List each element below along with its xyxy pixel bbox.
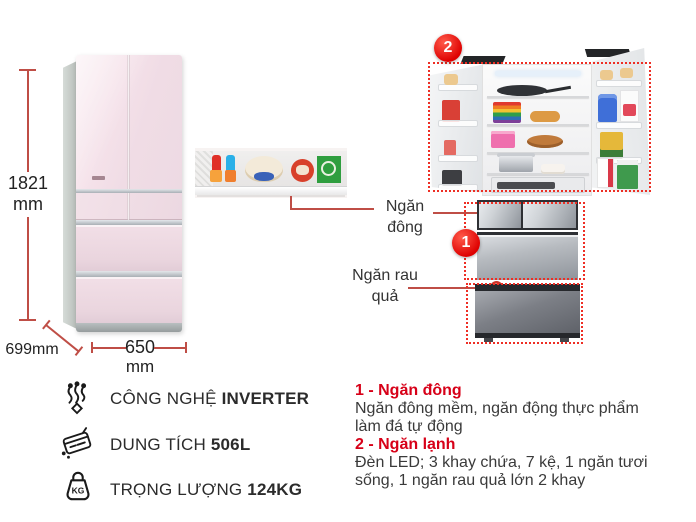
weight-icon-text: KG [72,486,85,496]
fridge-doors [76,55,182,189]
veg-label-line1: Ngăn rau [348,265,422,286]
fridge-drawer-upper [76,225,182,271]
fridge-closed-front [76,55,182,332]
vegetable-compartment-label: Ngăn rau quả [348,265,422,307]
freezer-compartment-label: Ngăn đông [376,196,434,238]
width-dim-line-right [154,347,186,349]
feature-capacity-label: DUNG TÍCH [110,435,206,454]
desc-1-body: Ngăn đông mềm, ngăn động thực phẩm làm đ… [355,400,660,436]
badge-2: 2 [434,34,462,62]
capacity-icon [58,425,96,461]
section-1-outline [464,202,585,280]
feature-weight-value: 124KG [247,480,302,499]
sauce-bottle-blue-base [225,170,236,182]
depth-dimension-label: 699mm [2,341,62,359]
height-dim-line-top [27,70,29,172]
sauce-bottle-red-base [210,170,222,182]
badge-1: 1 [452,229,480,257]
feature-inverter-label: CÔNG NGHỆ [110,389,217,408]
height-value: 1821 [0,173,56,194]
freezer-label-line2: đông [376,217,434,238]
small-drawer-divider [127,193,130,220]
feature-inverter-value: INVERTER [222,389,310,408]
feature-weight: TRỌNG LƯỢNG 124KG [110,480,302,500]
fridge-small-drawers [76,193,182,220]
desc-1-title: 1 - Ngăn đông [355,382,660,400]
height-dim-tick-bottom [19,319,36,321]
veg-label-line2: quả [348,286,422,307]
door-divider [127,55,130,189]
product-infographic: 1821 mm 699mm 650 mm [0,0,696,522]
weight-icon: KG [61,468,95,504]
feature-inverter: CÔNG NGHỆ INVERTER [110,389,309,409]
height-dim-tick-top [19,69,36,71]
tray-front-lip [195,186,347,195]
feature-capacity-value: 506L [211,435,251,454]
freezer-tray-photo [195,148,347,198]
section-2-outline [428,62,651,192]
depth-tick-end [75,346,83,356]
brand-logo-mark [92,176,105,180]
food-box-green-swirl [321,161,336,176]
height-unit: mm [0,194,56,215]
freezer-label-line1: Ngăn [376,196,434,217]
width-dim-tick-right [185,342,187,353]
feature-weight-label: TRỌNG LƯỢNG [110,480,242,499]
food-tin-label [296,165,309,175]
height-dimension-label: 1821 mm [0,173,56,215]
tray-interior [195,151,347,186]
fridge-base [76,323,182,332]
desc-2-body: Đèn LED; 3 khay chứa, 7 kệ, 1 ngăn tươi … [355,454,660,490]
depth-tick-start [42,320,50,330]
fridge-drawer-lower [76,277,182,323]
feature-capacity: DUNG TÍCH 506L [110,435,250,455]
vegetable-outline [466,283,583,344]
width-unit: mm [118,357,162,377]
desc-2-title: 2 - Ngăn lạnh [355,436,660,454]
inverter-icon [60,381,94,415]
fridge-side-panel [63,61,77,329]
compartment-descriptions: 1 - Ngăn đông Ngăn đông mềm, ngăn động t… [355,382,660,490]
food-tub-label [254,172,274,181]
tray-shadow [197,195,345,197]
height-dim-line-bottom [27,217,29,320]
tray-connector-horizontal [290,208,374,210]
